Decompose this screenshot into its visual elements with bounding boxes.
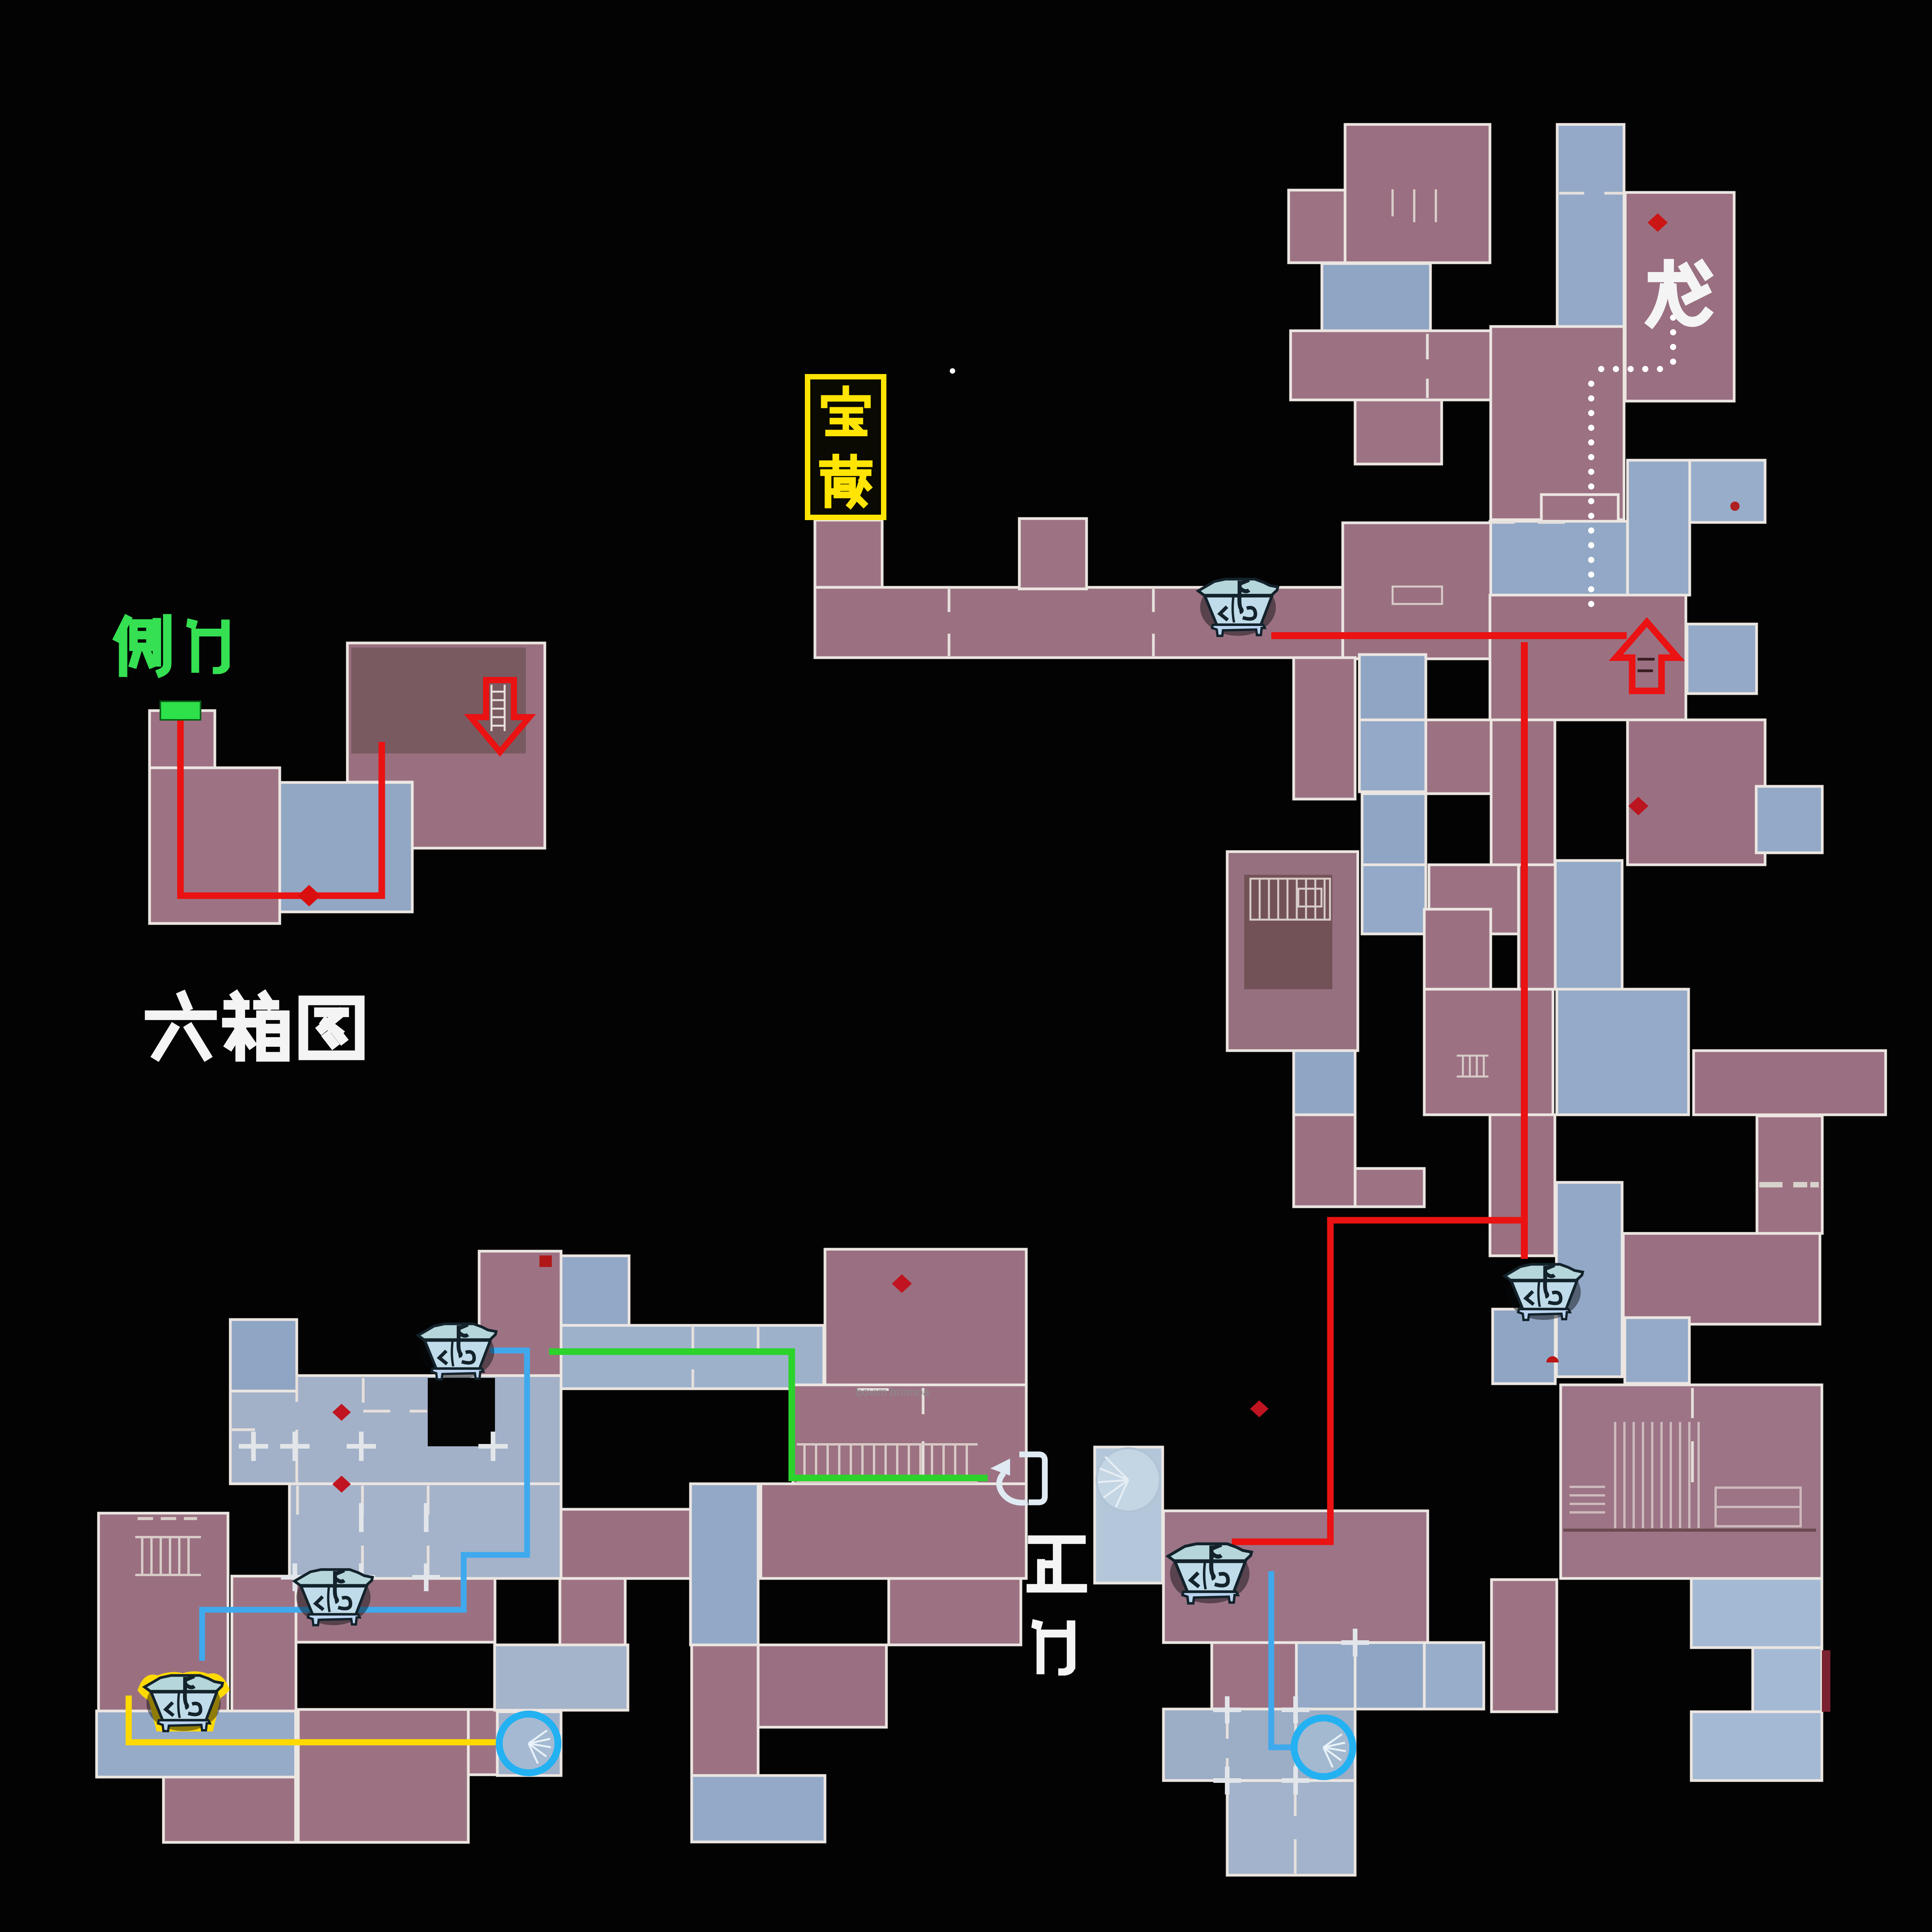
svg-text:bovim bromoa: bovim bromoa xyxy=(856,1386,929,1398)
